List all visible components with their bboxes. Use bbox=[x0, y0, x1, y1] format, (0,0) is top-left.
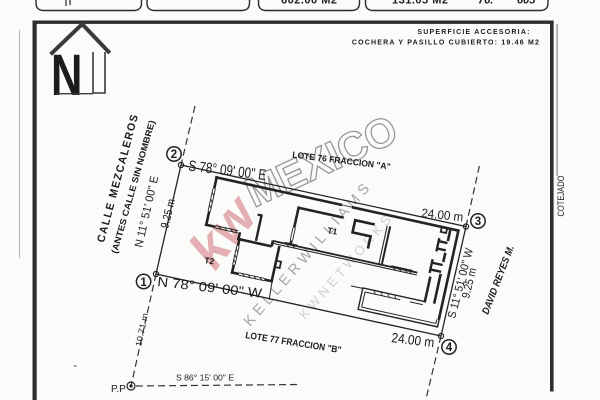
svg-text:N: N bbox=[51, 43, 82, 107]
svg-text:COCHERA Y PASILLO CUBIERTO: 19: COCHERA Y PASILLO CUBIERTO: 19.46 M2 bbox=[352, 40, 540, 47]
svg-text:4: 4 bbox=[446, 342, 453, 354]
svg-text:P.P: P.P bbox=[111, 384, 126, 395]
svg-text:605: 605 bbox=[517, 0, 536, 7]
svg-text:76.: 76. bbox=[478, 0, 493, 7]
svg-text:S 86° 15' 00" E: S 86° 15' 00" E bbox=[176, 373, 234, 383]
svg-text:SUPERFICIE ACCESORIA:: SUPERFICIE ACCESORIA: bbox=[417, 29, 530, 36]
svg-text:COTEJADO: COTEJADO bbox=[556, 176, 566, 217]
svg-text:1: 1 bbox=[140, 277, 147, 289]
svg-text:2: 2 bbox=[171, 149, 177, 161]
svg-text:T2: T2 bbox=[204, 255, 215, 266]
svg-text:3: 3 bbox=[475, 216, 481, 228]
svg-text:602.00 M2: 602.00 M2 bbox=[281, 0, 337, 7]
svg-text:T1: T1 bbox=[327, 225, 339, 237]
svg-text:131.05 M2: 131.05 M2 bbox=[392, 0, 448, 7]
